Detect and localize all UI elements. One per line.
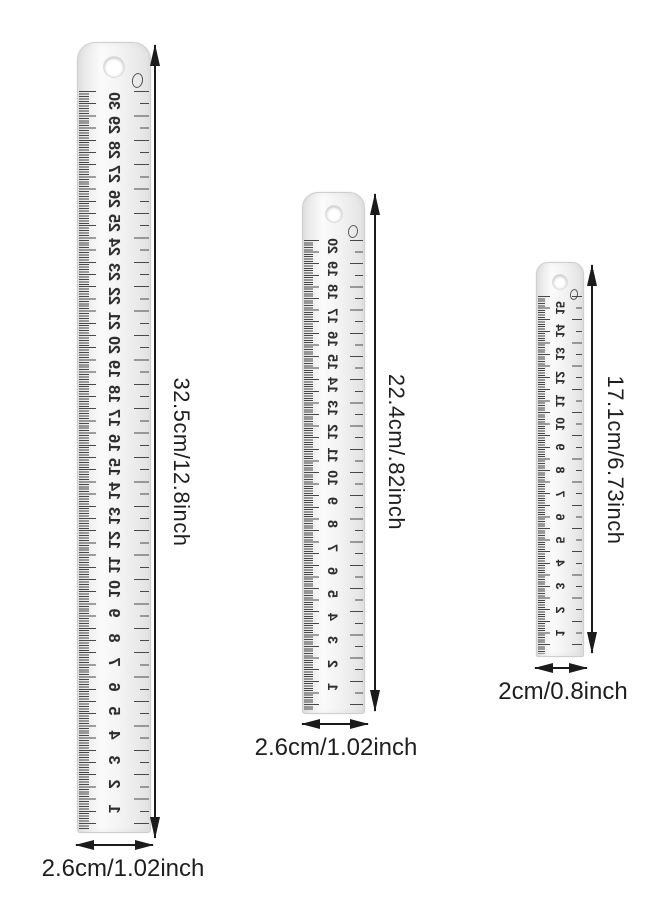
width-dimension-arrow [76, 844, 153, 846]
scale-number: 3 [325, 636, 341, 644]
scale-number: 10 [104, 580, 122, 598]
scale-number: 16 [325, 331, 341, 347]
scale-number: 4 [104, 731, 122, 740]
scale-number: 16 [104, 434, 122, 452]
scale-number: 23 [104, 263, 122, 281]
scale-number: 12 [104, 531, 122, 549]
ruler-20cm: 2019181716151413121110987654321 [302, 192, 365, 714]
scale-number: 1 [553, 629, 567, 636]
scale-number: 7 [104, 658, 122, 667]
width-label: 2.6cm/1.02inch [255, 734, 418, 762]
width-label: 2cm/0.8inch [498, 678, 627, 706]
hang-hole [326, 206, 342, 222]
scale-number: 2 [553, 606, 567, 613]
scale-number: 19 [104, 360, 122, 378]
scale-number: 9 [104, 609, 122, 618]
scale-number: 13 [325, 401, 341, 417]
scale-number: 18 [325, 285, 341, 301]
scale-number: 28 [104, 141, 122, 159]
scale-number: 8 [553, 467, 567, 474]
ruler-fine-ticks [79, 91, 96, 830]
scale-number: 15 [104, 458, 122, 476]
length-dimension-arrow [374, 194, 376, 711]
scale-number: 2 [104, 780, 122, 789]
length-label: 32.5cm/12.8inch [168, 378, 194, 547]
width-dimension-arrow [302, 723, 368, 725]
scale-number: 5 [553, 537, 567, 544]
scale-number: 13 [104, 507, 122, 525]
length-dimension-arrow [591, 265, 593, 653]
scale-number: 12 [325, 424, 341, 440]
scale-number: 8 [325, 520, 341, 528]
scale-number: 13 [553, 348, 567, 361]
scale-number: 20 [325, 238, 341, 254]
scale-number: 7 [325, 544, 341, 552]
ruler-cm-ticks [350, 240, 363, 711]
scale-number: 6 [104, 682, 122, 691]
scale-number: 29 [104, 116, 122, 134]
scale-number: 10 [325, 470, 341, 486]
scale-number: 9 [553, 444, 567, 451]
width-dimension-arrow [535, 667, 587, 669]
ruler-fine-ticks [304, 240, 319, 711]
product-dimension-image: 3029282726252423222120191817161514131211… [0, 0, 660, 900]
scale-number: 3 [104, 755, 122, 764]
length-dimension-arrow [154, 45, 156, 838]
scale-number: 7 [553, 490, 567, 497]
scale-number: 2 [325, 660, 341, 668]
scale-number: 6 [553, 513, 567, 520]
ruler-cm-ticks [572, 296, 582, 654]
scale-number: 27 [104, 165, 122, 183]
scale-number: 6 [325, 567, 341, 575]
scale-number: 4 [325, 613, 341, 621]
scale-number: 14 [553, 325, 567, 338]
length-label: 17.1cm/6.73inch [602, 376, 628, 545]
scale-number: 17 [104, 409, 122, 427]
hang-hole [553, 275, 567, 289]
scale-number: 9 [325, 497, 341, 505]
scale-number: 4 [553, 560, 567, 567]
brand-stamp-icon [131, 72, 144, 89]
scale-number: 30 [104, 92, 122, 110]
scale-number: 15 [325, 354, 341, 370]
scale-number: 14 [325, 377, 341, 393]
scale-number: 10 [553, 417, 567, 430]
length-label: 22.4cm/.82inch [383, 374, 409, 530]
scale-number: 25 [104, 214, 122, 232]
scale-number: 21 [104, 312, 122, 330]
scale-number: 17 [325, 308, 341, 324]
scale-number: 5 [104, 707, 122, 716]
scale-number: 22 [104, 287, 122, 305]
scale-number: 19 [325, 261, 341, 277]
scale-number: 8 [104, 633, 122, 642]
ruler-15cm: 151413121110987654321 [536, 262, 584, 657]
width-label: 2.6cm/1.02inch [42, 855, 205, 883]
scale-number: 26 [104, 190, 122, 208]
scale-number: 3 [553, 583, 567, 590]
scale-number: 1 [325, 683, 341, 691]
scale-number: 11 [325, 447, 341, 462]
scale-number: 1 [104, 804, 122, 813]
ruler-cm-ticks [134, 91, 149, 830]
brand-stamp-icon [347, 224, 359, 239]
scale-number: 5 [325, 590, 341, 598]
scale-number: 12 [553, 371, 567, 384]
hang-hole [104, 57, 124, 77]
scale-number: 11 [553, 394, 567, 407]
scale-number: 20 [104, 336, 122, 354]
scale-number: 24 [104, 238, 122, 256]
scale-number: 18 [104, 385, 122, 403]
scale-number: 15 [553, 301, 567, 314]
ruler-30cm: 3029282726252423222120191817161514131211… [77, 42, 151, 833]
scale-number: 14 [104, 482, 122, 500]
scale-number: 11 [104, 556, 122, 573]
ruler-fine-ticks [538, 296, 550, 654]
